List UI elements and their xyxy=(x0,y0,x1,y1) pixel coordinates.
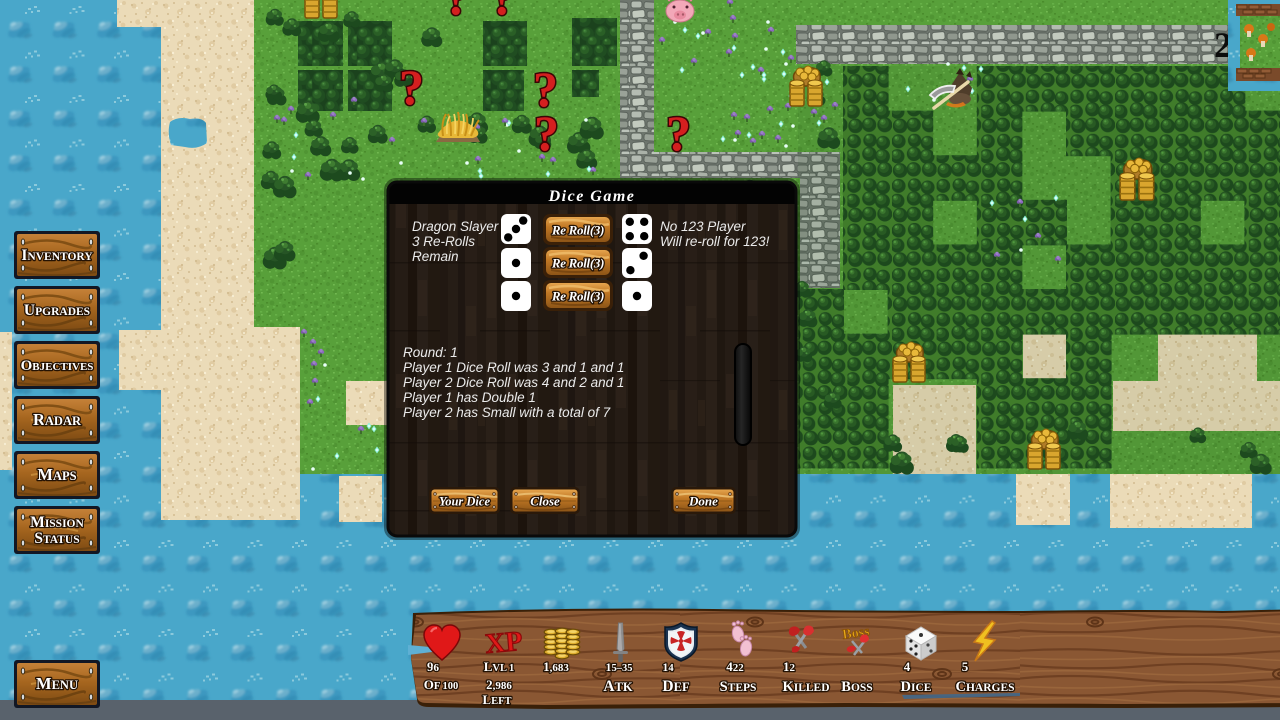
svg-text:XP: XP xyxy=(484,626,524,660)
svg-text:KILLED: KILLED xyxy=(782,679,829,695)
svg-text:Close: Close xyxy=(530,494,560,509)
svg-text:15–35: 15–35 xyxy=(606,660,633,674)
svg-text:ATK: ATK xyxy=(603,678,633,695)
svg-text:1,683: 1,683 xyxy=(543,659,569,674)
svg-text:Dragon Slayer: Dragon Slayer xyxy=(412,219,499,234)
svg-text:Player 1 Dice Roll was 3 and 1: Player 1 Dice Roll was 3 and 1 and 1 xyxy=(403,360,624,375)
svg-text:Player 2 Dice Roll was 4 and 2: Player 2 Dice Roll was 4 and 2 and 1 xyxy=(403,375,624,390)
svg-text:422: 422 xyxy=(726,659,744,674)
svg-text:12: 12 xyxy=(783,659,796,674)
svg-text:DEF: DEF xyxy=(662,678,690,695)
svg-text:?: ? xyxy=(399,59,424,115)
svg-text:Re Roll(3): Re Roll(3) xyxy=(551,223,604,238)
svg-text:Round: 1: Round: 1 xyxy=(403,345,458,360)
svg-text:5: 5 xyxy=(962,659,969,674)
svg-text:?: ? xyxy=(445,0,470,25)
svg-text:Re Roll(3): Re Roll(3) xyxy=(551,289,604,304)
svg-text:?: ? xyxy=(666,105,691,161)
svg-text:CHARGES: CHARGES xyxy=(955,679,1014,695)
svg-text:Player 2 has Small with a tota: Player 2 has Small with a total of 7 xyxy=(403,405,611,420)
svg-text:2,986: 2,986 xyxy=(486,677,512,692)
svg-text:STEPS: STEPS xyxy=(720,679,757,695)
svg-text:Done: Done xyxy=(688,494,718,509)
svg-text:?: ? xyxy=(534,105,559,161)
svg-text:Will re-roll for 123!: Will re-roll for 123! xyxy=(660,234,770,249)
svg-text:DICE: DICE xyxy=(901,679,932,695)
svg-text:14: 14 xyxy=(662,660,674,674)
svg-text:Dice Game: Dice Game xyxy=(548,188,636,205)
svg-text:BOSS: BOSS xyxy=(841,679,872,695)
svg-text:4: 4 xyxy=(904,659,911,674)
svg-text:No 123 Player: No 123 Player xyxy=(660,219,746,234)
svg-text:Player 1 has Double 1: Player 1 has Double 1 xyxy=(403,390,536,405)
svg-text:OBJECTIVES: OBJECTIVES xyxy=(21,358,94,374)
svg-text:Re Roll(3): Re Roll(3) xyxy=(551,256,604,271)
svg-text:?: ? xyxy=(491,0,516,25)
svg-text:3 Re-Rolls: 3 Re-Rolls xyxy=(412,234,475,249)
svg-text:96: 96 xyxy=(427,659,440,674)
svg-text:Remain: Remain xyxy=(412,249,459,264)
svg-text:Your Dice: Your Dice xyxy=(439,495,490,509)
